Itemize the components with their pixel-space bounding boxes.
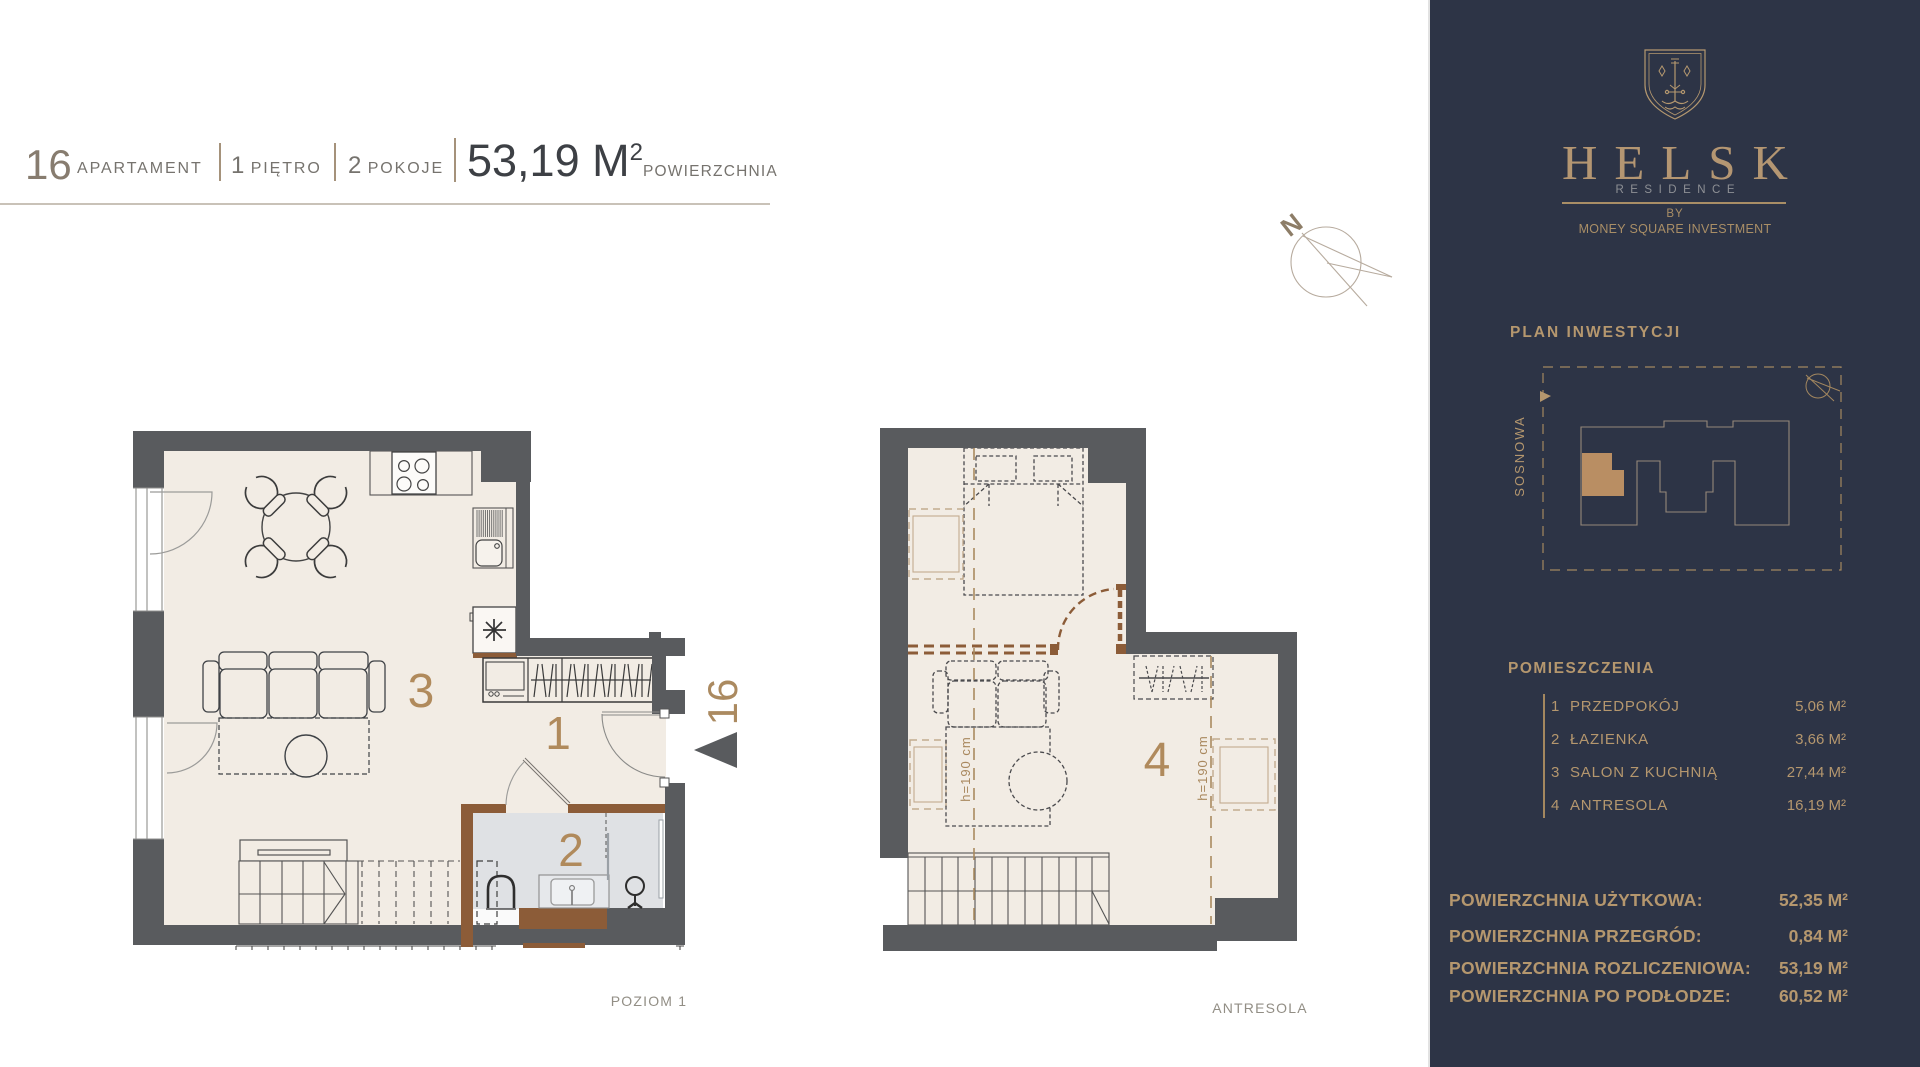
svg-text:h=190 cm: h=190 cm — [958, 736, 973, 801]
svg-text:h=190 cm: h=190 cm — [1195, 735, 1210, 800]
svg-text:16: 16 — [699, 679, 746, 726]
svg-text:4: 4 — [1144, 734, 1171, 787]
svg-text:N: N — [1275, 207, 1308, 242]
svg-text:3: 3 — [408, 665, 435, 718]
svg-text:SOSNOWA: SOSNOWA — [1512, 415, 1527, 496]
svg-text:2: 2 — [558, 824, 584, 876]
svg-text:1: 1 — [545, 707, 571, 759]
